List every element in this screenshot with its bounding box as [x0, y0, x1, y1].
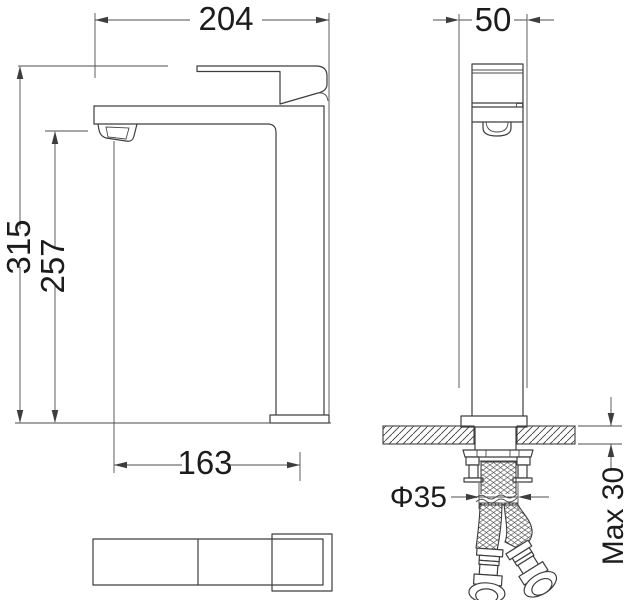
arrowhead-left-in [518, 494, 531, 501]
supply-hoses [468, 462, 561, 600]
hose-fitting-left [468, 548, 508, 600]
hose-fitting-right [502, 537, 561, 600]
hose-left [476, 503, 502, 551]
arrowhead-up [52, 131, 59, 144]
base-flange-side [270, 415, 329, 423]
bracket-foot-left [464, 478, 483, 482]
locknut-plate [463, 450, 533, 457]
countertop-left [383, 426, 474, 444]
dimension-spout-reach: 163 [114, 141, 300, 481]
countertop-right [517, 426, 575, 444]
dim-label-257: 257 [34, 238, 71, 293]
bracket-leg-right [518, 465, 527, 478]
arrowhead-right-in [466, 494, 479, 501]
arrowhead-up [17, 66, 24, 79]
lever-tip-detail [318, 93, 328, 101]
plan-view [93, 534, 332, 591]
base-flange-front [461, 416, 527, 427]
arrowhead-down [52, 410, 59, 423]
arrowhead-right-in [446, 17, 459, 24]
lever-handle-side [197, 66, 327, 104]
bracket-leg-left [469, 465, 478, 478]
arrowhead-right [316, 17, 329, 24]
arrowhead-left [95, 17, 108, 24]
locknut-block-right [517, 457, 530, 465]
drawing-canvas: 204 315 257 163 50 [0, 0, 635, 600]
dimension-overall-height: 315 [0, 66, 168, 423]
arrowhead-down [608, 413, 615, 426]
column-front [472, 64, 523, 417]
aerator-side-inner [106, 127, 129, 139]
dim-label-50: 50 [475, 1, 512, 38]
dim-label-163: 163 [177, 444, 232, 481]
arrowhead-down [17, 410, 24, 423]
spout-body-plan [93, 539, 323, 585]
locknut-block-left [466, 457, 479, 465]
dimension-overall-width: 204 [95, 0, 329, 415]
shank-through-counter [475, 427, 516, 452]
arrowhead-up [608, 444, 615, 457]
dim-label-315: 315 [0, 219, 37, 274]
fitting-body [479, 564, 498, 575]
faucet-technical-drawing: 204 315 257 163 50 [0, 0, 635, 600]
dimension-max-counter-thickness: Max 30 [578, 397, 630, 565]
spout-underside [94, 124, 276, 415]
front-view [461, 64, 527, 452]
countertop-section [383, 426, 575, 444]
aerator-side [98, 124, 137, 141]
dimension-shank-diameter: Φ35 [390, 481, 549, 514]
dim-label-max30: Max 30 [597, 467, 630, 565]
dim-label-204: 204 [198, 0, 253, 37]
dimension-spout-height: 257 [34, 131, 88, 423]
arrowhead-right [287, 462, 300, 469]
dim-label-phi35: Φ35 [390, 481, 447, 514]
arrowhead-left-in [527, 17, 540, 24]
arrowhead-left [114, 462, 127, 469]
